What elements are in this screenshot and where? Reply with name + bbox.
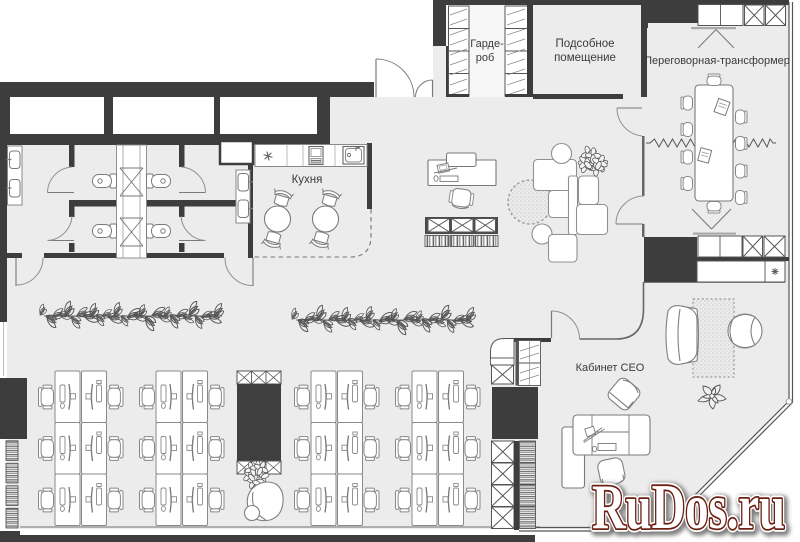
svg-text:Подсобное: Подсобное xyxy=(555,38,614,50)
svg-text:роб: роб xyxy=(476,52,495,64)
svg-text:помещение: помещение xyxy=(554,52,616,64)
svg-text:RuDos.ru: RuDos.ru xyxy=(592,472,785,542)
svg-text:Кабинет CEO: Кабинет CEO xyxy=(576,362,645,374)
svg-text:Кухня: Кухня xyxy=(292,174,323,186)
svg-text:Переговорная-трансформер: Переговорная-трансформер xyxy=(644,55,790,67)
svg-text:Гарде-: Гарде- xyxy=(470,38,504,50)
